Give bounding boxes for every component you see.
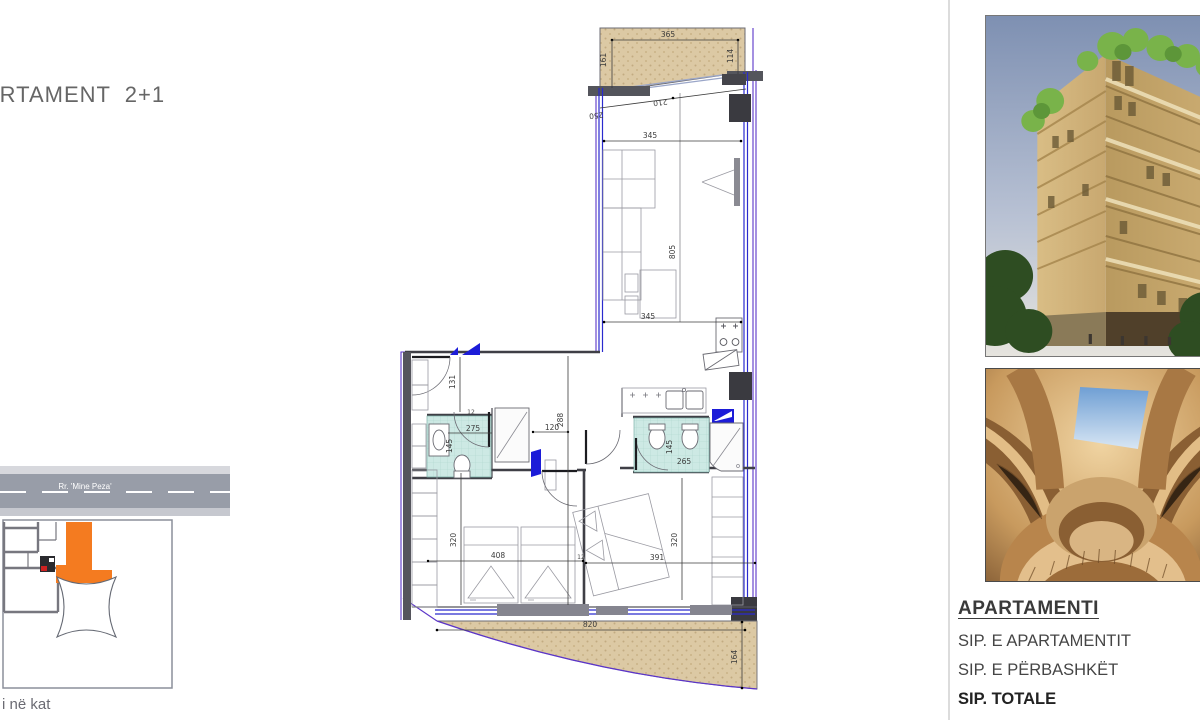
presentation-page: ARTAMENT 2+1 [0,0,1200,720]
hall-shelf [545,460,556,490]
sidebar-row-common-area: SIP. E PËRBASHKËT [958,661,1198,680]
road: Rr. 'Mine Peza' [0,466,230,516]
dim-label: 288 [556,413,565,428]
dim-label: 114 [726,49,735,64]
dim-label: 805 [668,245,677,260]
window-sill [588,86,650,96]
dim-label: 250 [588,110,603,120]
dim-label: 145 [445,439,454,454]
stove [716,318,742,352]
site-plan: Rr. 'Mine Peza' [0,460,245,710]
floor-plan-drawing: 365 161 114 210 250 345 805 345 131 275 … [395,18,787,710]
building-render-image [985,15,1200,357]
dim-label: 210 [652,97,668,108]
building-render-art [986,16,1200,356]
dim-label: 408 [491,551,506,560]
dim-label: 320 [670,533,679,548]
shaft [729,94,751,122]
wardrobe-right [712,477,743,605]
site-plan-drawing: Rr. 'Mine Peza' [0,460,245,710]
sidebar-divider [948,0,950,720]
kitchen-sink [703,350,739,371]
sidebar-title: APARTAMENTI [958,598,1198,620]
dim-label: 275 [466,424,481,433]
shower-1 [495,408,529,462]
wardrobe-left [412,360,437,607]
courtyard-shape [57,577,116,637]
entry-door [412,357,450,395]
dim-label: 164 [730,650,739,665]
dim-label: 131 [448,375,457,390]
window-marker-flag [712,409,734,423]
bedroom1-door [542,471,577,506]
shaft [729,372,752,400]
dim-label: 365 [661,30,676,39]
courtyard-render-art [986,369,1200,581]
bottom-windows [435,604,755,616]
dim-label: 820 [583,620,598,629]
dim-label: 265 [677,457,692,466]
dim-label: 320 [449,533,458,548]
bedroom1-beds [464,527,575,603]
window-marker [462,343,480,355]
door-marker [531,449,541,477]
dim-label: 391 [650,553,665,562]
sofa [603,150,655,300]
balcony-top [588,28,763,96]
dim-label: 12 [577,554,585,561]
street-label: Rr. 'Mine Peza' [58,482,112,491]
dim-label: 345 [643,131,658,140]
bedroom2-door [586,430,620,464]
sidebar-row-total-area: SIP. TOTALE [958,690,1198,709]
page-title: ARTAMENT 2+1 [0,82,165,108]
shower-2 [710,423,743,471]
dim-label: 161 [599,53,608,68]
courtyard-render-image [985,368,1200,582]
position-marker [40,556,55,572]
shaft [722,74,746,85]
dining-table [625,270,676,318]
bathroom-1 [427,412,491,478]
sidebar-legend: APARTAMENTI SIP. E APARTAMENTIT SIP. E P… [958,598,1198,719]
bedroom2-bed [573,494,669,596]
balcony-bottom [437,621,757,689]
tv-unit [702,158,740,206]
kitchen-counter [622,388,706,413]
sidebar-row-apartment-area: SIP. E APARTAMENTIT [958,632,1198,651]
dim-label: 12 [467,409,475,416]
unit-outline [401,28,756,689]
dim-label: 345 [641,312,656,321]
site-caption: i në kat [2,696,50,713]
dim-label: 145 [665,440,674,455]
walls [403,352,757,620]
floor-plan: 365 161 114 210 250 345 805 345 131 275 … [395,18,787,710]
